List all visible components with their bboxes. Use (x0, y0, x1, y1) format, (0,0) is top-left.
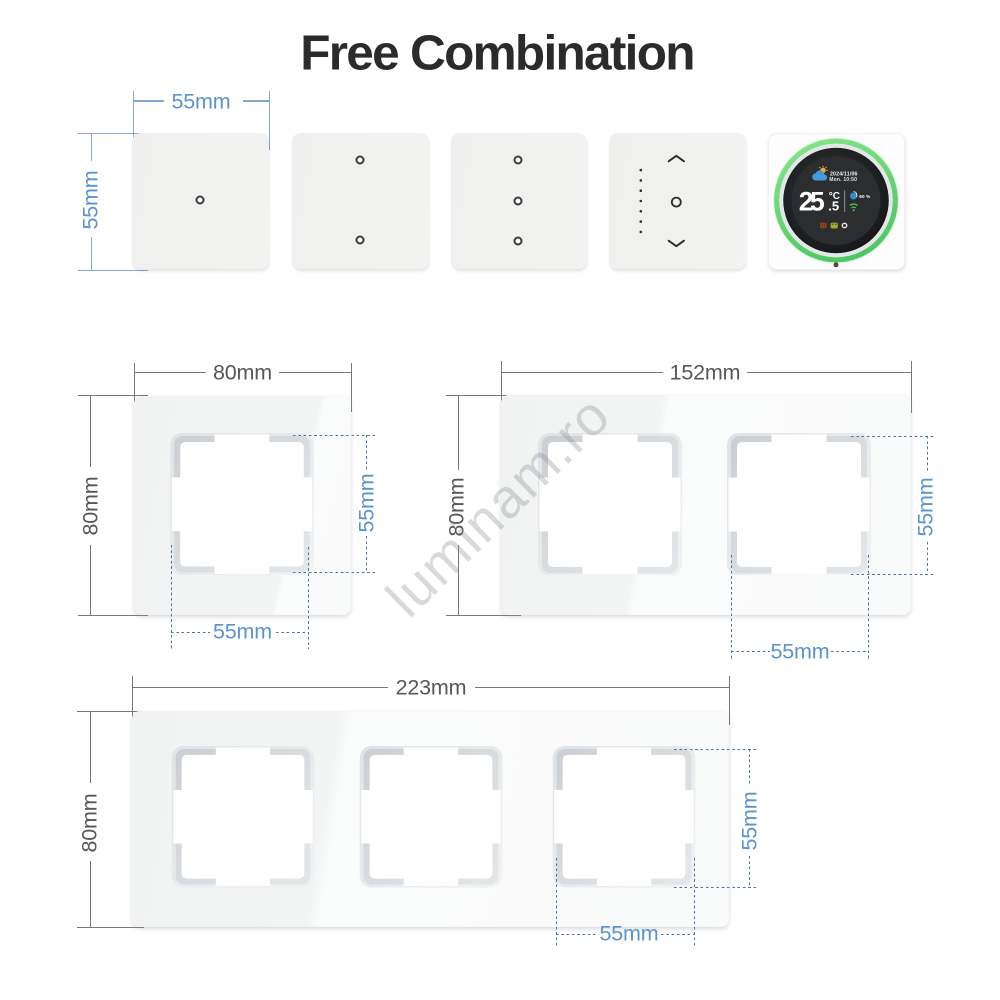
svg-text:60 %: 60 % (859, 193, 870, 198)
svg-text:Mon. 10:50: Mon. 10:50 (829, 177, 857, 183)
svg-text:.5: .5 (828, 198, 839, 213)
svg-text:25: 25 (799, 186, 825, 216)
